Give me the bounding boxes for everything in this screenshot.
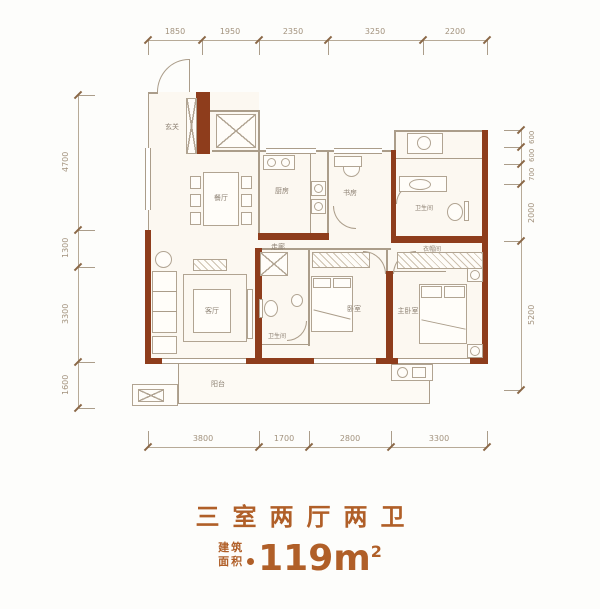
window [162, 358, 246, 364]
area-block: 建筑 面积 119m2 [150, 541, 450, 575]
pillow [444, 286, 465, 298]
dim-label: 2200 [430, 27, 480, 37]
dim-label: 3250 [350, 27, 400, 37]
dim-label: 600 [527, 127, 538, 147]
window [266, 148, 316, 154]
dim-label: 5200 [527, 294, 538, 336]
plant [155, 251, 172, 268]
room-label-master: 主卧室 [394, 306, 422, 316]
room-label-bath-top: 卫生间 [410, 203, 438, 212]
area-value: 119m2 [258, 544, 382, 575]
room-label-living: 客厅 [198, 306, 226, 316]
dim-label: 3300 [61, 289, 73, 339]
room-label-balcony: 阳台 [204, 379, 232, 389]
cabinet [193, 259, 227, 271]
entry-cabinet [186, 98, 197, 154]
ottoman [152, 336, 177, 354]
dim-label: 2800 [325, 434, 375, 444]
room-label-closet: 衣帽间 [418, 244, 446, 253]
dim-label: 2350 [268, 27, 318, 37]
dim-label: 3800 [178, 434, 228, 444]
room-label-bath-bottom: 卫生间 [263, 331, 291, 340]
dining-chair [190, 212, 201, 225]
dining-chair [241, 176, 252, 189]
toilet-tank [259, 299, 263, 318]
dim-label: 1300 [61, 223, 73, 273]
sofa [152, 271, 177, 333]
plan-title: 三室两厅两卫 [150, 497, 450, 532]
dim-label: 3300 [414, 434, 464, 444]
room-label-kitchen: 厨房 [268, 186, 296, 196]
room-label-dining: 餐厅 [203, 193, 239, 203]
entry-door-leaf [189, 59, 190, 92]
wardrobe [397, 252, 483, 269]
wash-basin [291, 294, 303, 307]
dim-label: 1850 [150, 27, 200, 37]
toilet-tank [464, 201, 469, 221]
wash-basin [409, 179, 431, 190]
dim-label: 1700 [259, 434, 309, 444]
dining-chair [241, 194, 252, 207]
toilet [447, 203, 463, 221]
dim-label: 2000 [527, 192, 538, 234]
window [145, 148, 151, 210]
dim-label: 4700 [61, 137, 73, 187]
dim-label: 1600 [61, 360, 73, 410]
storage-cabinet [216, 114, 256, 148]
wardrobe [312, 252, 370, 268]
tv-unit [247, 289, 253, 339]
room-label-entry: 玄关 [160, 122, 184, 132]
dining-chair [190, 194, 201, 207]
entry-door-arc [157, 59, 189, 92]
pillow [333, 278, 351, 288]
room-label-bedroom: 卧室 [340, 304, 368, 314]
floorplan-page: 1850 1950 2350 3250 2200 3800 1700 2800 … [0, 0, 600, 609]
window [334, 148, 382, 154]
window [314, 358, 376, 364]
approx-dot [247, 558, 254, 565]
dim-label: 700 [527, 164, 538, 184]
room-label-study: 书房 [336, 188, 364, 198]
dim-label: 1950 [205, 27, 255, 37]
pillow [313, 278, 331, 288]
dining-chair [241, 212, 252, 225]
pillow [421, 286, 442, 298]
shower [260, 252, 288, 276]
dining-chair [190, 176, 201, 189]
area-label: 建筑 面积 [218, 541, 244, 569]
room-label-corridor: 走廊 [264, 242, 292, 252]
study-desk [334, 156, 362, 167]
toilet [264, 300, 278, 317]
dim-label: 600 [527, 145, 538, 165]
